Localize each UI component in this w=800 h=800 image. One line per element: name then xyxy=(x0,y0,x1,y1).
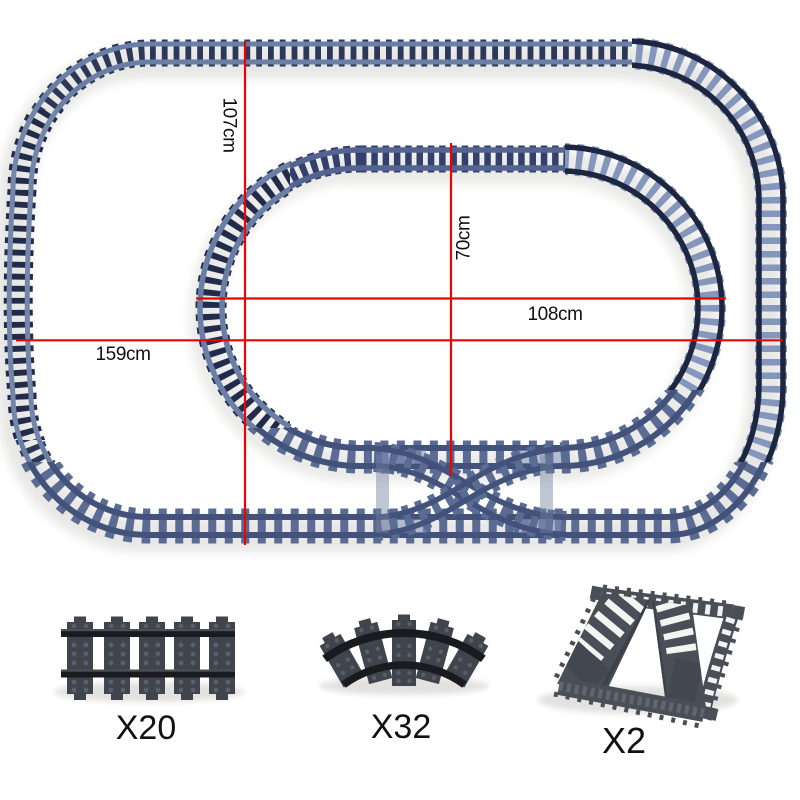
svg-text:108cm: 108cm xyxy=(527,304,582,325)
svg-text:X20: X20 xyxy=(116,709,177,747)
svg-text:159cm: 159cm xyxy=(95,344,150,365)
svg-text:X32: X32 xyxy=(371,708,432,746)
svg-text:107cm: 107cm xyxy=(219,97,240,152)
svg-text:70cm: 70cm xyxy=(454,216,475,261)
svg-text:X2: X2 xyxy=(602,720,646,761)
